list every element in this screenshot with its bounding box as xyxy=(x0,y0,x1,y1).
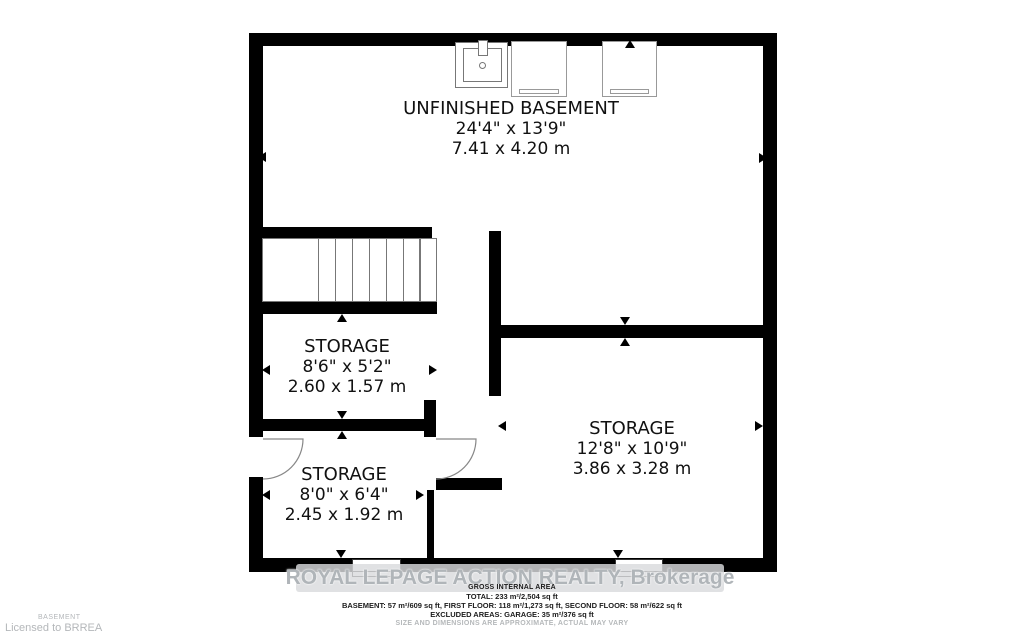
stair-tread xyxy=(420,239,421,301)
room-name: STORAGE xyxy=(532,418,732,439)
area-disclaimer: SIZE AND DIMENSIONS ARE APPROXIMATE, ACT… xyxy=(212,619,812,628)
stair-landing xyxy=(419,238,437,302)
appliance-base-line xyxy=(610,89,649,94)
license-block: BASEMENT Licensed to BRREA xyxy=(5,614,102,635)
room-dimensions-metric: 3.86 x 3.28 m xyxy=(532,459,732,479)
dimension-arrow-left-icon xyxy=(262,365,270,375)
room-label-storage-right: STORAGE 12'8" x 10'9" 3.86 x 3.28 m xyxy=(532,418,732,479)
appliance-icon xyxy=(511,41,567,97)
dimension-arrow-down-icon xyxy=(336,550,346,558)
dimension-arrow-right-icon xyxy=(755,421,763,431)
room-dimensions-metric: 7.41 x 4.20 m xyxy=(336,139,686,159)
room-name: STORAGE xyxy=(247,336,447,357)
room-label-unfinished-basement: UNFINISHED BASEMENT 24'4" x 13'9" 7.41 x… xyxy=(336,98,686,159)
dimension-arrow-right-icon xyxy=(416,490,424,500)
room-label-storage-lower-left: STORAGE 8'0" x 6'4" 2.45 x 1.92 m xyxy=(244,464,444,525)
licensed-to: Licensed to BRREA xyxy=(5,622,102,635)
dimension-arrow-up-icon xyxy=(337,431,347,439)
room-dimensions-imperial: 12'8" x 10'9" xyxy=(532,439,732,459)
gross-internal-area-block: GROSS INTERNAL AREA TOTAL: 233 m²/2,504 … xyxy=(212,583,812,628)
wall-right xyxy=(763,33,777,572)
area-heading: GROSS INTERNAL AREA xyxy=(212,583,812,592)
stair-tread xyxy=(403,239,404,301)
dimension-arrow-left-icon xyxy=(258,152,266,162)
wall-central-vertical xyxy=(489,231,501,396)
appliance-icon xyxy=(602,41,657,97)
floor-plan: UNFINISHED BASEMENT 24'4" x 13'9" 7.41 x… xyxy=(0,0,1024,639)
stair-tread xyxy=(318,239,319,301)
dimension-arrow-left-icon xyxy=(498,421,506,431)
dimension-arrow-right-icon xyxy=(429,365,437,375)
dimension-arrow-right-icon xyxy=(759,153,767,163)
dimension-arrow-down-icon xyxy=(337,411,347,419)
stair-tread xyxy=(369,239,370,301)
area-total: TOTAL: 233 m²/2,504 sq ft xyxy=(212,592,812,601)
wall-stairs-bottom xyxy=(255,302,437,314)
room-dimensions-imperial: 8'6" x 5'2" xyxy=(247,357,447,377)
room-label-storage-middle: STORAGE 8'6" x 5'2" 2.60 x 1.57 m xyxy=(247,336,447,397)
dimension-arrow-up-icon xyxy=(337,314,347,322)
sink-drain-icon xyxy=(479,62,486,69)
stair-tread xyxy=(352,239,353,301)
area-floors: BASEMENT: 57 m²/609 sq ft, FIRST FLOOR: … xyxy=(212,601,812,610)
room-dimensions-imperial: 24'4" x 13'9" xyxy=(336,119,686,139)
staircase-outline xyxy=(262,238,437,302)
area-excluded: EXCLUDED AREAS: GARAGE: 35 m²/376 sq ft xyxy=(212,610,812,619)
sink-faucet-icon xyxy=(478,40,488,56)
dimension-arrow-down-icon xyxy=(613,550,623,558)
dimension-arrow-up-icon xyxy=(625,40,635,48)
stair-tread xyxy=(335,239,336,301)
dimension-arrow-up-icon xyxy=(620,338,630,346)
wall-stub-above-door xyxy=(424,400,436,419)
stair-tread xyxy=(386,239,387,301)
room-dimensions-metric: 2.45 x 1.92 m xyxy=(244,505,444,525)
wall-storage-right-top xyxy=(489,325,765,338)
room-dimensions-metric: 2.60 x 1.57 m xyxy=(247,377,447,397)
wall-mid-left xyxy=(262,419,436,431)
dimension-arrow-left-icon xyxy=(262,490,270,500)
floor-label: BASEMENT xyxy=(38,614,102,622)
room-name: UNFINISHED BASEMENT xyxy=(336,98,686,119)
dimension-arrow-down-icon xyxy=(620,317,630,325)
room-dimensions-imperial: 8'0" x 6'4" xyxy=(244,485,444,505)
appliance-base-line xyxy=(519,89,559,94)
room-name: STORAGE xyxy=(244,464,444,485)
